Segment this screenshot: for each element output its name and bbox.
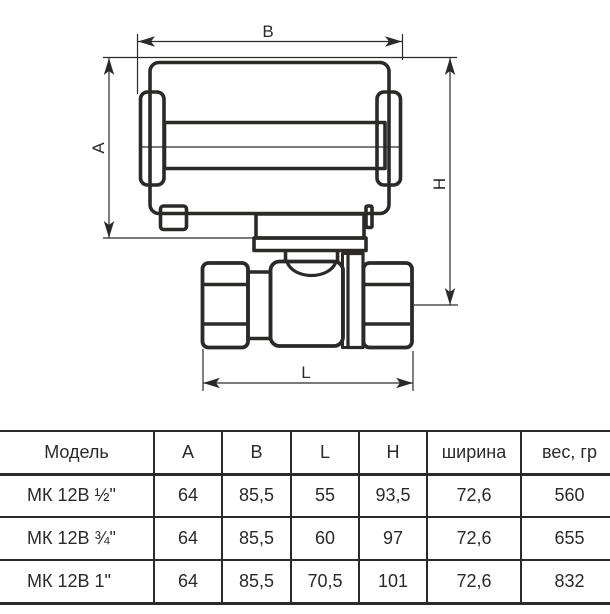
cell-model: МК 12В 1"	[0, 560, 154, 603]
header-model: Модель	[0, 431, 154, 474]
valve-connector-left	[248, 272, 271, 339]
dim-label-a: A	[89, 142, 108, 154]
header-a: A	[154, 431, 222, 474]
dim-label-l: L	[301, 363, 310, 382]
cell-b: 85,5	[222, 517, 291, 560]
cell-h: 101	[359, 560, 427, 603]
table-row: МК 12В 1" 64 85,5 70,5 101 72,6 832	[0, 560, 610, 603]
dimension-table: Модель A B L H ширина вес, гр МК 12В ½" …	[0, 430, 610, 605]
header-width: ширина	[427, 431, 521, 474]
cell-h: 93,5	[359, 474, 427, 517]
cell-a: 64	[154, 517, 222, 560]
actuator-side-clip-left	[141, 92, 165, 185]
cell-l: 60	[291, 517, 359, 560]
cell-weight: 560	[521, 474, 610, 517]
actuator-bottom-tab-left	[161, 206, 187, 230]
table-header-row: Модель A B L H ширина вес, гр	[0, 431, 610, 474]
cell-width: 72,6	[427, 517, 521, 560]
valve-ball-arc	[287, 262, 336, 276]
cell-b: 85,5	[222, 560, 291, 603]
valve-hex-nut-right	[364, 263, 413, 348]
actuator-bottom-tab-right	[366, 206, 372, 228]
valve-hex-nut-left	[203, 263, 249, 348]
table-row: МК 12В ½" 64 85,5 55 93,5 72,6 560	[0, 474, 610, 517]
actuator-mount-flange	[254, 238, 366, 251]
actuator-front-bar	[165, 123, 386, 169]
valve-union-ring-wide	[348, 254, 363, 348]
header-h: H	[359, 431, 427, 474]
dim-label-b: B	[262, 22, 273, 41]
header-weight: вес, гр	[521, 431, 610, 474]
valve-dimension-diagram: B A H L	[0, 0, 610, 420]
cell-b: 85,5	[222, 474, 291, 517]
actuator-drawing	[141, 63, 401, 251]
cell-l: 55	[291, 474, 359, 517]
table-row: МК 12В ¾" 64 85,5 60 97 72,6 655	[0, 517, 610, 560]
cell-weight: 832	[521, 560, 610, 603]
cell-a: 64	[154, 474, 222, 517]
header-l: L	[291, 431, 359, 474]
cell-model: МК 12В ½"	[0, 474, 154, 517]
cell-weight: 655	[521, 517, 610, 560]
cell-l: 70,5	[291, 560, 359, 603]
cell-a: 64	[154, 560, 222, 603]
dim-label-h: H	[430, 178, 449, 190]
header-b: B	[222, 431, 291, 474]
cell-h: 97	[359, 517, 427, 560]
actuator-body-outline	[150, 63, 389, 214]
spec-table-section: Модель A B L H ширина вес, гр МК 12В ½" …	[0, 430, 610, 605]
valve-body-drawing	[203, 251, 413, 348]
cell-model: МК 12В ¾"	[0, 517, 154, 560]
cell-width: 72,6	[427, 474, 521, 517]
actuator-mount-bracket	[256, 214, 364, 238]
cell-width: 72,6	[427, 560, 521, 603]
